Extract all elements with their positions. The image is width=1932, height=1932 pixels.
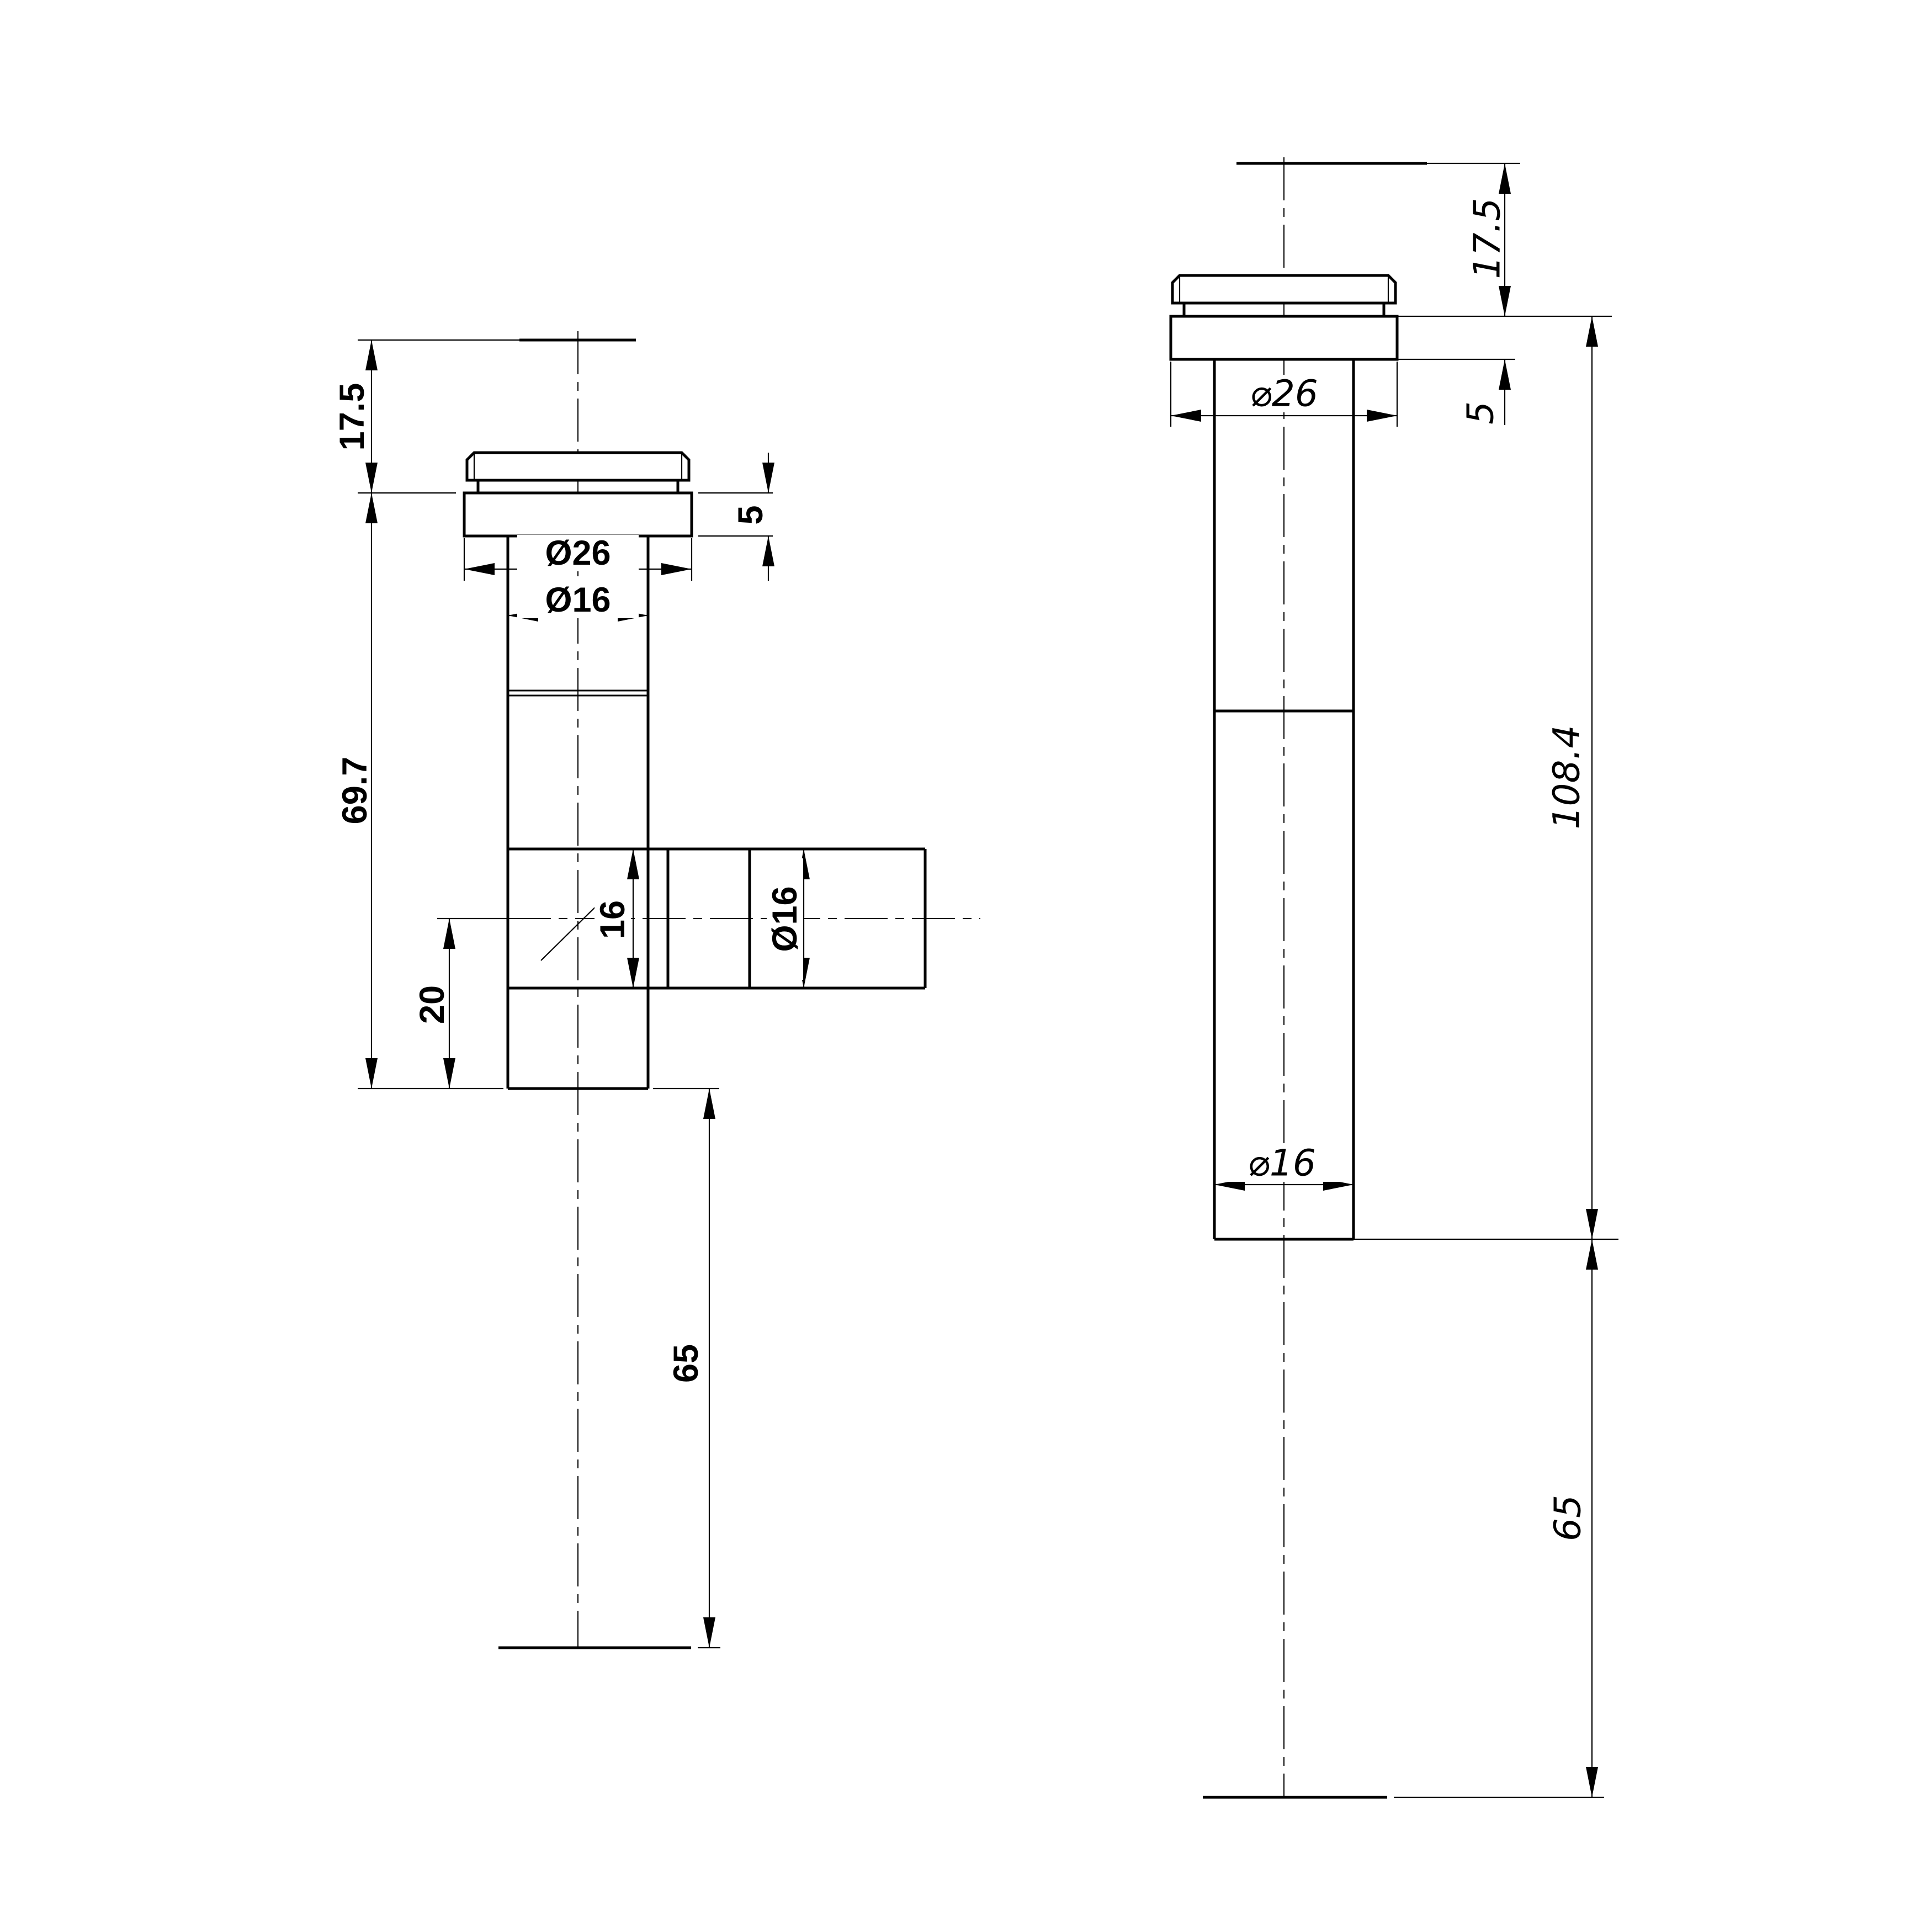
dim-label-tail-length: 65 <box>1547 1495 1589 1541</box>
dim-label-flange-diameter: ⌀26 <box>1250 373 1318 415</box>
dim-label-pipe-diameter-group: ⌀16 <box>1218 1142 1345 1185</box>
dim-label-overall-length: 108.4 <box>1546 725 1588 830</box>
cap-top <box>1172 275 1395 303</box>
dim-label-branch-diameter: Ø16 <box>766 886 804 952</box>
cap-top <box>467 453 689 480</box>
dim-label-flange-thickness: 5 <box>731 505 770 524</box>
dim-label-flange-diameter: Ø26 <box>545 534 611 572</box>
side-dimension-labels: 17.5 5 108.4 65 ⌀26 ⌀16 <box>1218 198 1589 1541</box>
dim-label-pipe-diameter: ⌀16 <box>1248 1142 1316 1185</box>
dim-label-cap-height: 17.5 <box>1466 198 1509 279</box>
front-view: 17.5 69.7 20 65 5 Ø26 Ø16 16 Ø16 <box>333 331 980 1648</box>
dim-label-cap-height: 17.5 <box>333 383 371 451</box>
dim-label-branch-bore-group: 16 <box>593 885 632 954</box>
flange <box>1171 316 1397 359</box>
dim-label-branch-diameter-group: Ø16 <box>766 858 804 980</box>
dim-label-pipe-diameter-group: Ø16 <box>517 581 639 619</box>
dim-label-body-length: 69.7 <box>336 757 374 825</box>
dim-label-flange-diameter-group: ⌀26 <box>1220 373 1347 415</box>
dim-label-flange-thickness: 5 <box>1459 401 1502 424</box>
dim-label-branch-center-offset: 20 <box>413 985 452 1024</box>
flange <box>464 493 692 536</box>
dim-label-flange-diameter-group: Ø26 <box>517 534 639 572</box>
dim-label-tail-length: 65 <box>667 1344 705 1383</box>
dim-label-pipe-diameter: Ø16 <box>545 581 611 619</box>
dim-label-branch-bore: 16 <box>593 900 632 939</box>
drawing-page: 17.5 69.7 20 65 5 Ø26 Ø16 16 Ø16 <box>0 0 1932 1932</box>
cad-drawing-canvas: 17.5 69.7 20 65 5 Ø26 Ø16 16 Ø16 <box>0 0 1932 1932</box>
side-view: 17.5 5 108.4 65 ⌀26 ⌀16 <box>1171 157 1618 1797</box>
